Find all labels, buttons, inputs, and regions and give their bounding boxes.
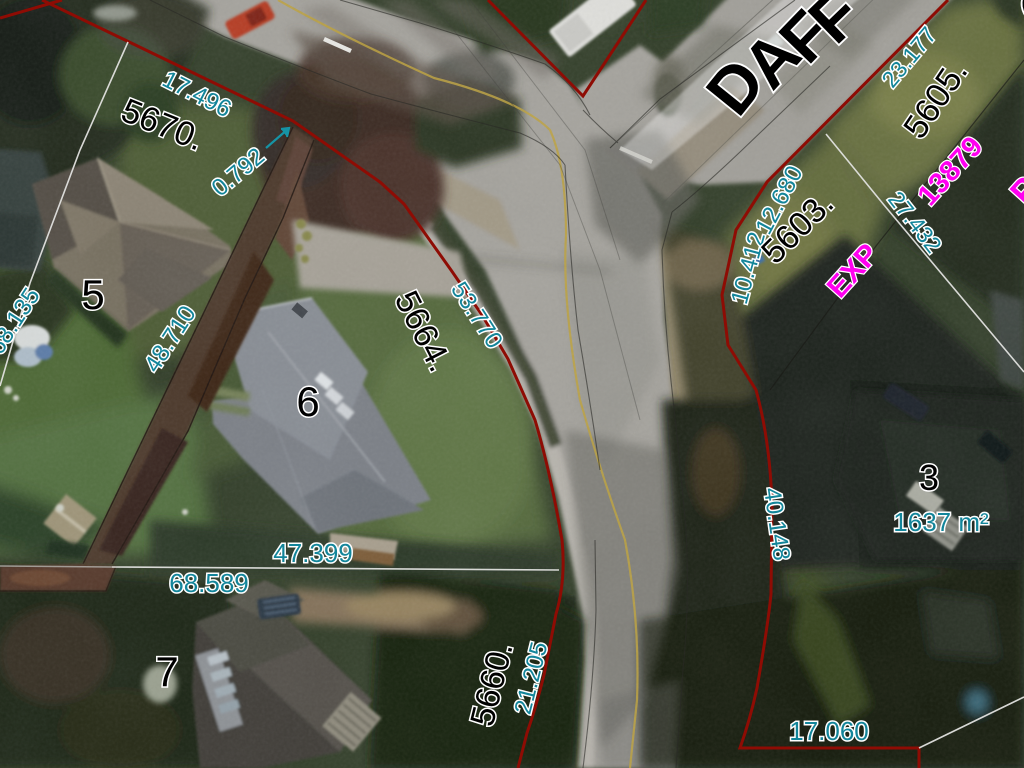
svg-text:68.589: 68.589 [169,568,249,598]
svg-text:7: 7 [155,648,178,695]
svg-text:17.060: 17.060 [789,716,869,746]
svg-text:6: 6 [296,378,319,425]
svg-text:1637 m²: 1637 m² [893,507,989,537]
svg-text:47.399: 47.399 [273,538,353,568]
svg-text:5: 5 [81,271,104,318]
svg-text:3: 3 [919,457,939,498]
